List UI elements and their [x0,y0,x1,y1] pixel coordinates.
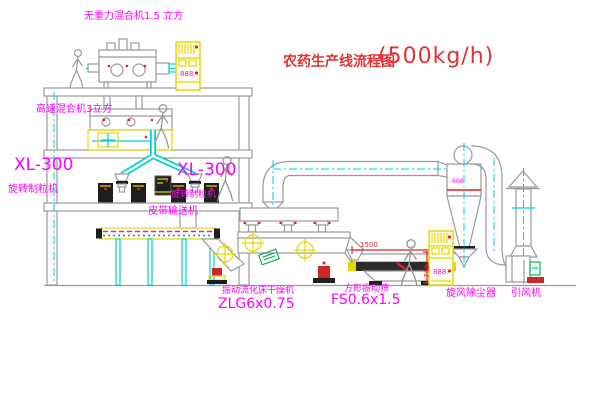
label-granulator-left-model: XL-300 [14,157,73,174]
control-cabinet-top: 888 [176,42,200,90]
cabinet-display: 888 [433,268,446,276]
rotary-granulator-left [98,174,146,203]
dim-screen-length: 1500 [360,242,378,249]
page-title-capacity: (500kg/h) [378,46,494,68]
induced-draft-fan [506,256,544,283]
label-cyclone: 旋风除尘器 [446,289,496,299]
cabinet-display: 888 [180,70,193,78]
fluid-bed-dryer [238,208,363,283]
label-fan: 引风机 [511,289,541,299]
cyclone-marking: 600 [452,179,463,185]
belt-conveyor [96,211,220,285]
label-dryer-model: ZLG6x0.75 [218,297,295,311]
label-screen-model: FS0.6x1.5 [331,293,401,307]
exhaust-duct [263,160,452,213]
label-granulator-mid-name: 旋转制粒机 [171,191,216,200]
cad-flow-diagram: 888 [0,0,600,403]
label-granulator-mid-model: XL-300 [177,162,236,179]
control-cabinet-bottom: 888 [429,231,453,285]
label-gravity-mixer: 无重力混合机1.5 立方 [84,12,183,22]
label-high-speed-mixer: 高速混合机3立方 [36,105,112,115]
dim-screen-height: 741 [424,265,431,278]
gravity-free-mixer [86,39,178,88]
label-dryer-name: 振动流化床干燥机 [222,287,294,296]
label-granulator-left-name: 旋转制粒机 [8,185,58,195]
label-belt-conveyor: 皮带输送机 [148,207,198,217]
floor-control-box [155,176,171,195]
worker-figure-1 [70,50,83,88]
